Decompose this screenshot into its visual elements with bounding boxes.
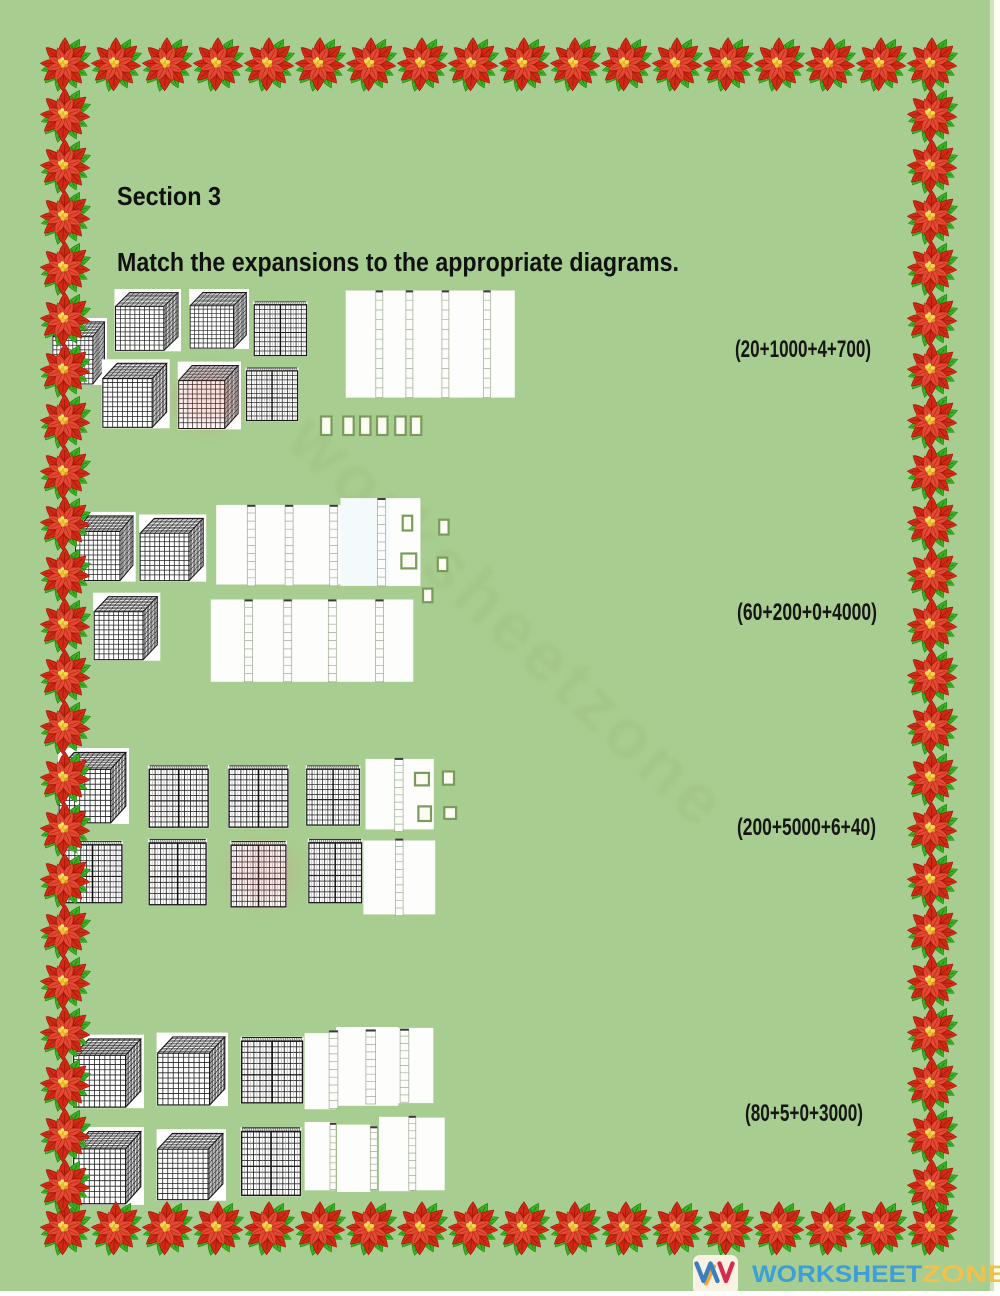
svg-text:(200+5000+6+40): (200+5000+6+40)	[737, 814, 876, 841]
svg-text:Match the expansions to the ap: Match the expansions to the appropriate …	[117, 249, 679, 277]
svg-text:(60+200+0+4000): (60+200+0+4000)	[737, 599, 877, 626]
svg-text:Section 3: Section 3	[117, 181, 221, 211]
svg-text:ZONE: ZONE	[922, 1261, 1000, 1288]
svg-text:(80+5+0+3000): (80+5+0+3000)	[745, 1100, 863, 1127]
svg-text:(20+1000+4+700): (20+1000+4+700)	[735, 336, 871, 363]
svg-text:WORKSHEET: WORKSHEET	[752, 1261, 922, 1288]
